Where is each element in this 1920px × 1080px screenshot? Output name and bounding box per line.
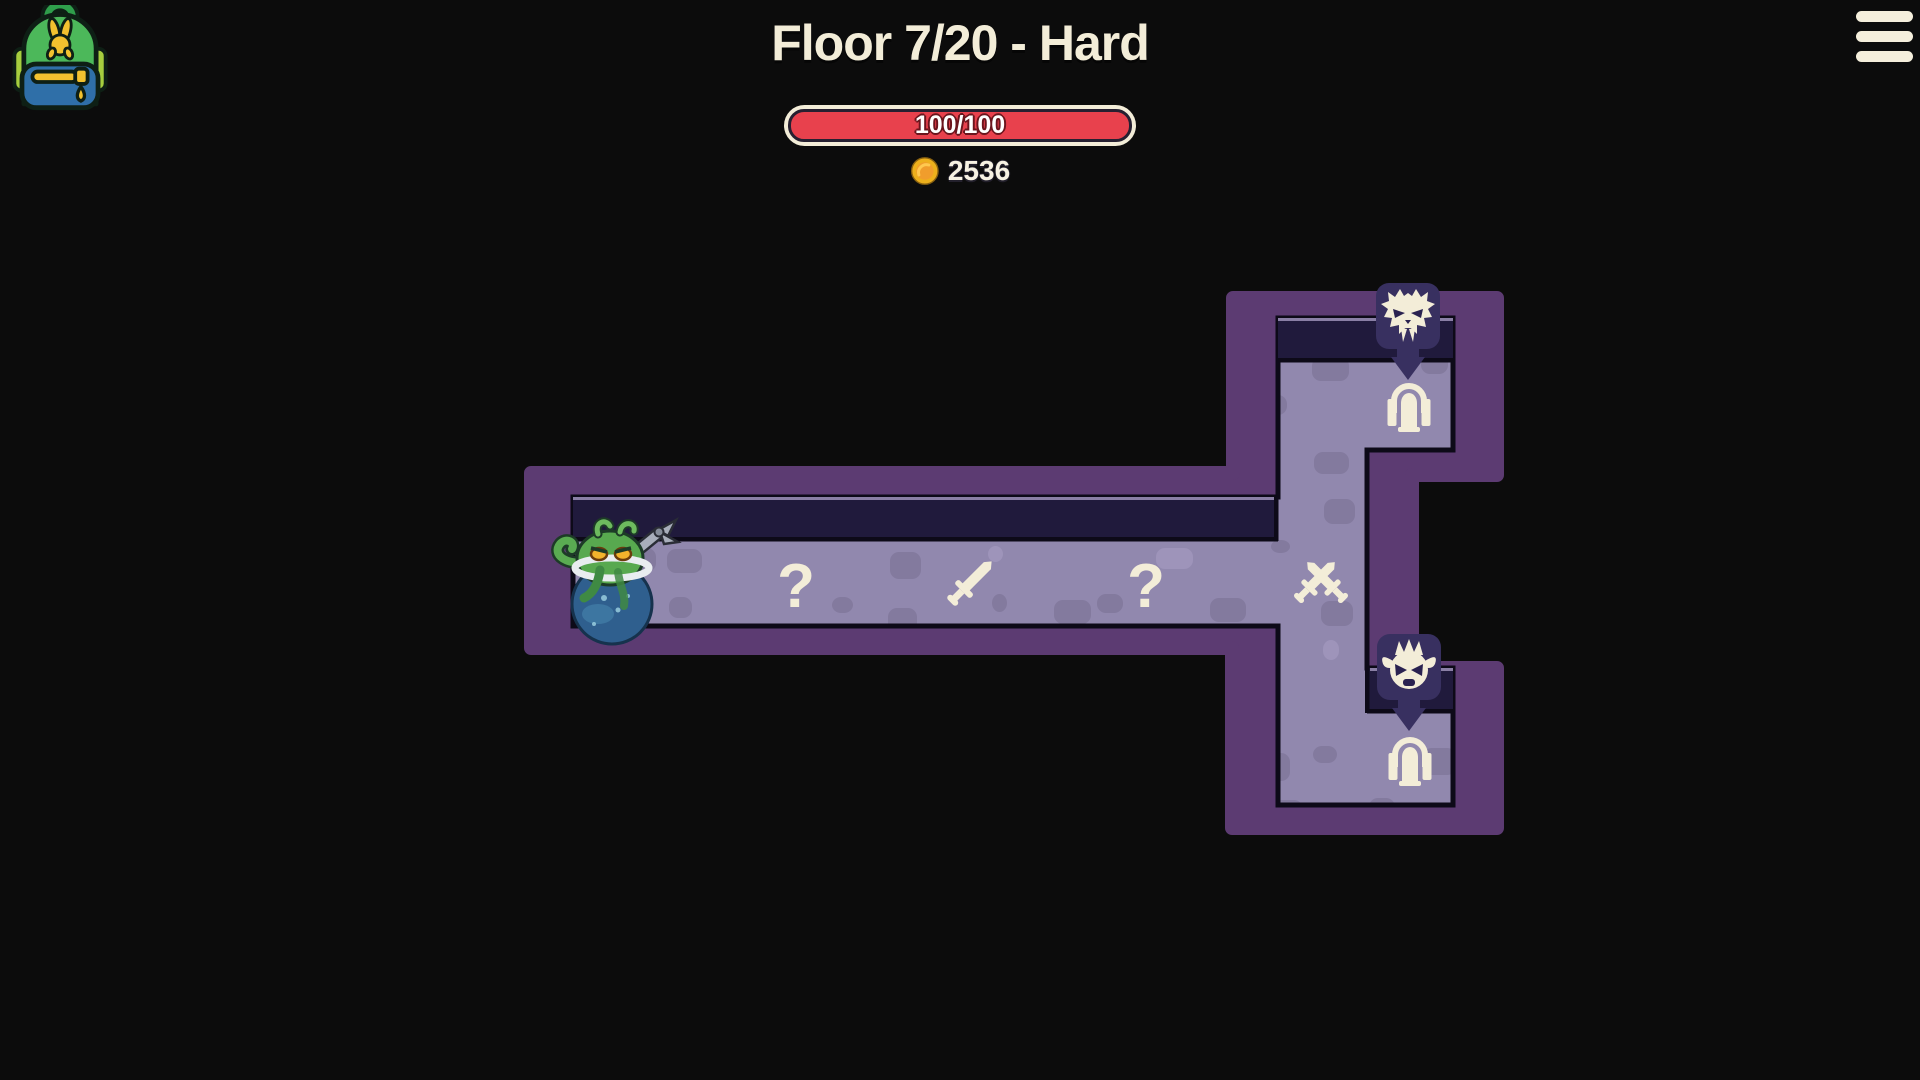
floor-tile: [667, 549, 702, 573]
node-unknown-1: [777, 552, 815, 621]
floor-tile: [1096, 758, 1127, 781]
floor-tile: [890, 552, 921, 579]
dungeon-floor: [573, 318, 1453, 805]
floor-tile: [1321, 601, 1353, 626]
floor-tile: [1110, 346, 1134, 365]
floor-tile: [1054, 600, 1091, 624]
floor-tile: [719, 793, 739, 813]
floor-title: Floor 7/20 - Hard: [0, 14, 1920, 72]
floor-tile: [1426, 498, 1454, 525]
floor-tile: [999, 708, 1033, 736]
gold-counter: 2536: [910, 155, 1010, 187]
node-unknown-2: [1127, 552, 1165, 621]
floor-tile: [1049, 741, 1068, 759]
floor-tile: [624, 790, 644, 803]
health-bar-fill: 100/100: [788, 109, 1132, 142]
floor-tile: [622, 345, 638, 363]
floor-tile: [718, 752, 745, 776]
floor-tile: [947, 693, 963, 708]
floor-tile: [992, 594, 1007, 612]
floor-tile: [724, 348, 760, 374]
game-screen: ?: [0, 0, 1920, 1080]
floor-tile: [996, 808, 1031, 837]
gold-coin-icon: [910, 156, 940, 186]
floor-tile: [1097, 594, 1123, 613]
floor-tile: [1314, 452, 1349, 474]
floor-tile: [558, 794, 581, 807]
floor-tile: [832, 597, 853, 613]
floor-tile: [893, 708, 924, 731]
floor-tile: [617, 705, 647, 733]
floor-tile: [988, 546, 1003, 562]
floor-tile: [946, 442, 969, 461]
floor-tile: [1056, 796, 1077, 815]
floor-tile: [1052, 655, 1088, 678]
floor-tile: [785, 751, 811, 772]
floor-tile: [782, 443, 805, 459]
gold-amount: 2536: [948, 155, 1010, 187]
floor-tile: [1210, 598, 1246, 622]
floor-tile: [888, 408, 921, 436]
floor-tile: [1313, 746, 1337, 763]
floor-tile: [1156, 658, 1184, 685]
floor-tile: [1156, 354, 1191, 375]
floor-tile: [781, 357, 808, 381]
floor-tile: [677, 690, 695, 707]
floor-tile: [943, 351, 979, 379]
floor-tile: [942, 798, 962, 819]
floor-tile: [935, 400, 965, 422]
floor-tile: [780, 689, 797, 710]
floor-tile: [1271, 540, 1290, 553]
health-value: 100/100: [915, 111, 1005, 140]
health-bar: 100/100: [784, 105, 1136, 146]
hamburger-menu-icon: [1856, 11, 1914, 62]
menu-button[interactable]: [1856, 11, 1914, 67]
floor-tile: [826, 697, 852, 717]
floor-tile: [619, 739, 639, 754]
floor-tile: [886, 351, 916, 373]
floor-tile: [1323, 640, 1339, 660]
floor-tile: [832, 788, 847, 808]
floor-tile: [1206, 797, 1224, 816]
floor-tile: [621, 395, 643, 414]
floor-tile: [839, 354, 869, 379]
floor-tile: [1053, 340, 1079, 360]
floor-tile: [669, 597, 692, 618]
floor-tile: [1324, 499, 1355, 524]
floor-tile: [826, 658, 855, 682]
